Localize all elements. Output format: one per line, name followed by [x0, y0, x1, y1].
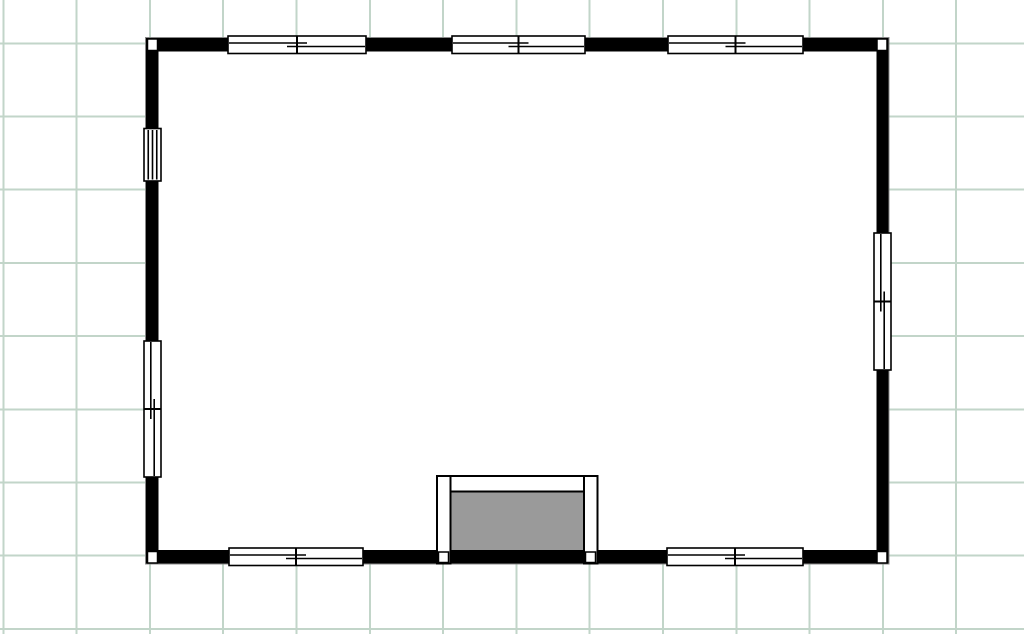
corner-post-top-right — [877, 39, 887, 51]
fireplace-top-band — [437, 476, 598, 492]
fireplace-post-left — [439, 552, 449, 563]
fireplace-post-right — [586, 552, 596, 563]
window-top-1[interactable] — [228, 36, 366, 54]
window-left-1[interactable] — [144, 129, 161, 182]
fireplace-left-column — [437, 476, 451, 564]
floorplan-svg — [0, 0, 1024, 634]
window-top-3[interactable] — [668, 36, 803, 54]
floorplan-canvas[interactable] — [0, 0, 1024, 634]
corner-post-bottom-right — [877, 552, 887, 564]
fireplace-right-column — [584, 476, 598, 564]
window-right-1[interactable] — [874, 233, 891, 370]
window-bottom-1[interactable] — [229, 548, 363, 566]
window-bottom-2[interactable] — [667, 548, 803, 566]
corner-post-top-left — [148, 39, 158, 51]
window-left-2[interactable] — [144, 341, 161, 477]
corner-post-bottom-left — [148, 552, 158, 564]
window-top-2[interactable] — [452, 36, 585, 54]
fireplace-firebox[interactable] — [451, 492, 585, 551]
